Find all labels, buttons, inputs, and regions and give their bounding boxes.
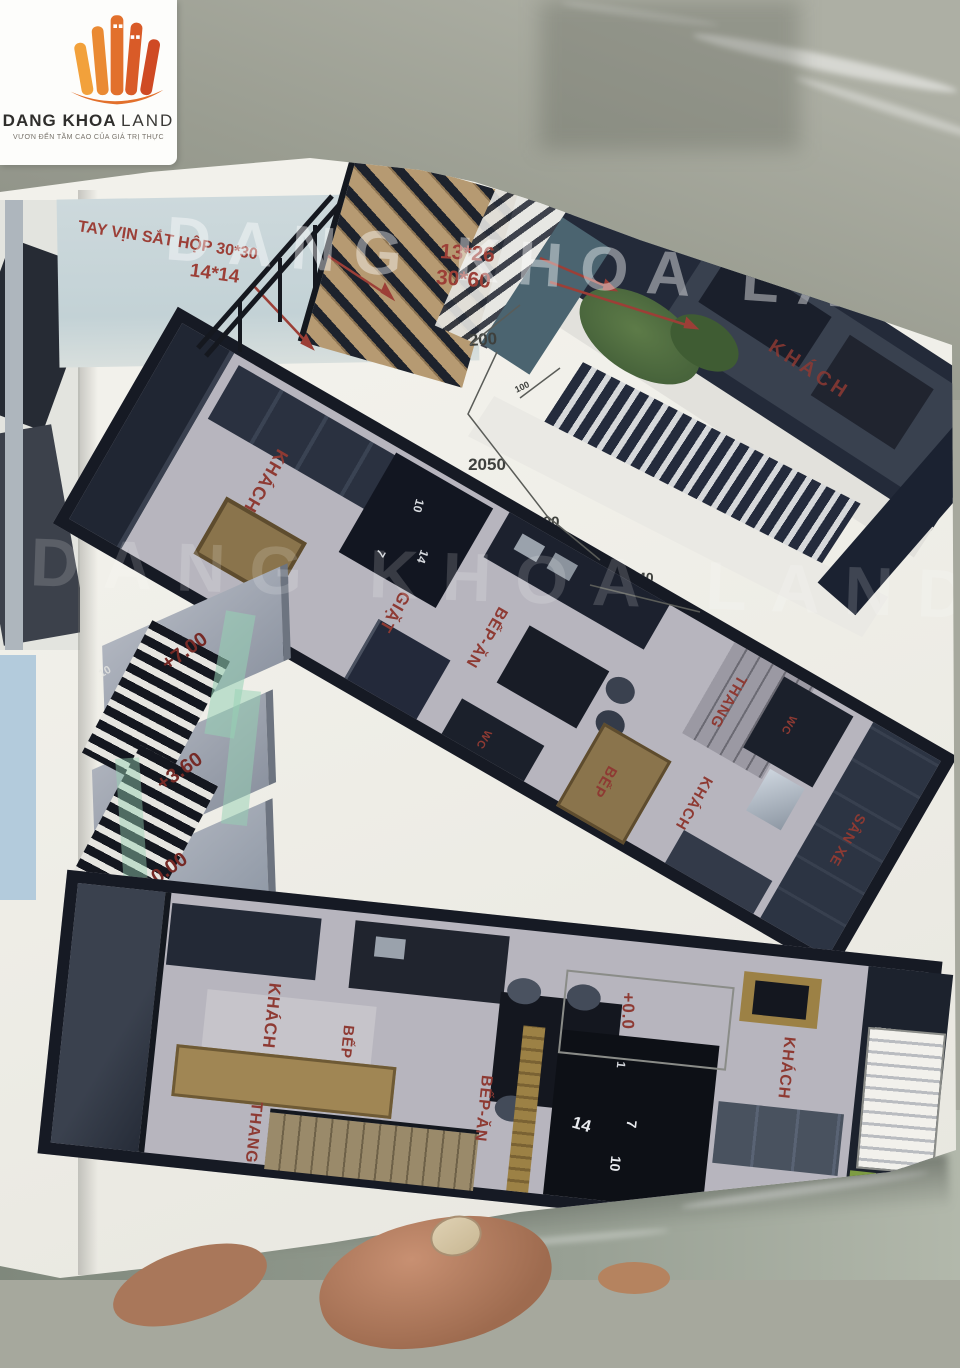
kitchen-cabinet-wood — [556, 723, 672, 845]
logo-tagline: VƯƠN ĐẾN TẦM CAO CỦA GIÁ TRỊ THỰC — [0, 134, 177, 141]
room-label: BẾP-ĂN — [470, 1074, 495, 1143]
room-label: KHÁCH — [239, 445, 292, 516]
room-label: KHÁCH — [773, 1036, 797, 1100]
level-zone-outline — [558, 970, 735, 1071]
kitchen-counter-bottom — [349, 920, 510, 1004]
sink-steel — [374, 936, 406, 959]
photo-canvas: { "logo": { "brand_bold": "DANG KHOA", "… — [0, 0, 960, 1280]
logo-card: DANG KHOA LAND VƯƠN ĐẾN TẦM CAO CỦA GIÁ … — [0, 0, 177, 165]
slat-door-render — [856, 1027, 946, 1175]
stair-step-number: 10 — [607, 1155, 625, 1172]
tv-screen — [752, 980, 809, 1019]
stair-treads-bottom — [264, 1108, 479, 1191]
level-label-bottom: +0.0 — [617, 992, 638, 1030]
room-label: KHÁCH — [672, 773, 716, 833]
wc-block-1 — [442, 698, 545, 781]
logo-brand-light: LAND — [121, 111, 174, 130]
marble-dark-patch — [540, 0, 800, 150]
dim-2050: 2050 — [468, 455, 506, 475]
media-wall — [166, 903, 322, 980]
sofa-2 — [665, 830, 772, 914]
kitchen-island — [497, 625, 610, 728]
dang-khoa-land-logo-icon — [57, 8, 177, 108]
island-chair — [601, 672, 640, 710]
laundry-machines — [345, 619, 451, 719]
fragment-render-glass — [5, 200, 23, 650]
dim-200: 200 — [468, 329, 498, 351]
left-page-blue-fragment — [0, 655, 36, 900]
stair-step-number: 7 — [623, 1119, 640, 1128]
room-label: BẾP — [337, 1024, 357, 1059]
finger-tip-right — [598, 1262, 670, 1294]
room-label: THANG — [241, 1101, 265, 1164]
sofa-bottom-plan — [712, 1101, 844, 1176]
logo-brand-bold: DANG KHOA — [3, 111, 117, 130]
stair-step-number: 1 — [614, 1061, 629, 1069]
left-facade-dark — [51, 883, 172, 1152]
